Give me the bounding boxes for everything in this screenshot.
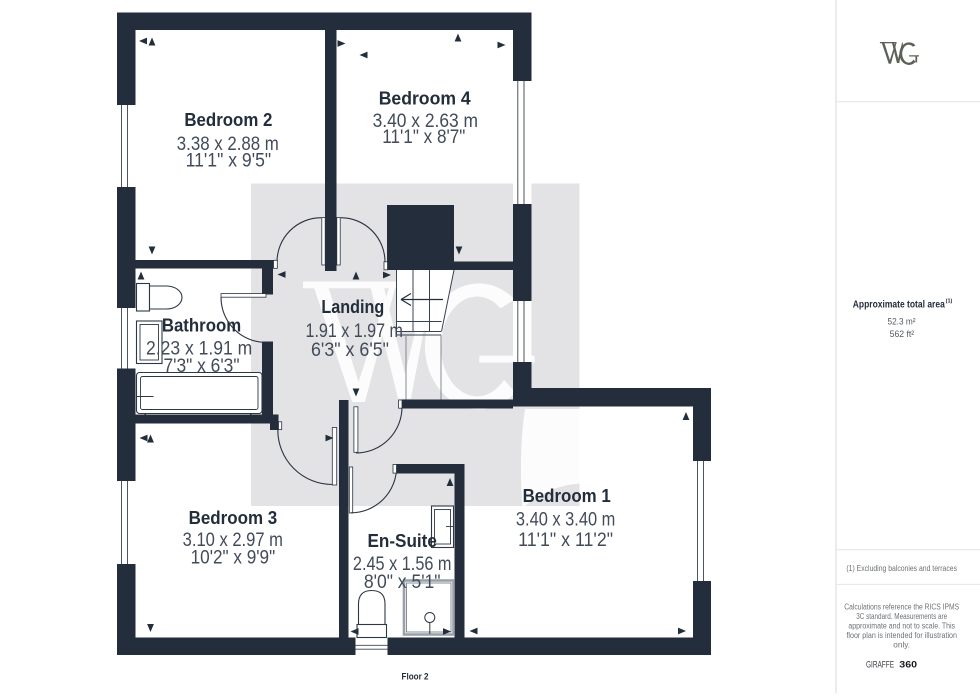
svg-text:562 ft²: 562 ft²: [890, 329, 915, 340]
svg-text:Floor 2: Floor 2: [402, 672, 429, 683]
svg-text:11'1" x 9'5": 11'1" x 9'5": [186, 150, 272, 171]
svg-text:En-Suite: En-Suite: [368, 531, 437, 551]
svg-text:11'1" x 11'2": 11'1" x 11'2": [518, 530, 613, 551]
svg-text:Bedroom 3: Bedroom 3: [189, 508, 278, 528]
svg-text:3C standard. Measurements are: 3C standard. Measurements are: [856, 612, 947, 621]
svg-text:7'3" x 6'3": 7'3" x 6'3": [163, 356, 239, 377]
svg-text:Bedroom 4: Bedroom 4: [379, 88, 471, 108]
svg-text:1.91 x 1.97 m: 1.91 x 1.97 m: [306, 321, 403, 342]
svg-text:Approximate total area: Approximate total area: [853, 300, 945, 311]
svg-text:Landing: Landing: [321, 297, 384, 317]
svg-text:8'0" x 5'1": 8'0" x 5'1": [364, 572, 441, 593]
svg-text:Bathroom: Bathroom: [162, 315, 241, 335]
svg-text:6'3" x 6'5": 6'3" x 6'5": [311, 340, 389, 361]
svg-text:Calculations reference the RIC: Calculations reference the RICS IPMS: [844, 603, 959, 612]
svg-text:52.3 m²: 52.3 m²: [888, 317, 916, 328]
svg-text:Bedroom 2: Bedroom 2: [184, 110, 272, 130]
svg-text:only.: only.: [893, 641, 910, 650]
svg-text:360: 360: [899, 659, 917, 670]
svg-text:Bedroom 1: Bedroom 1: [523, 486, 611, 506]
svg-text:approximate and not to scale.: approximate and not to scale. This: [848, 622, 955, 631]
svg-text:11'1" x 8'7": 11'1" x 8'7": [382, 127, 465, 148]
svg-text:GIRAFFE: GIRAFFE: [866, 659, 894, 670]
svg-text:floor plan is intended for ill: floor plan is intended for illustration: [846, 631, 957, 640]
svg-text:10'2" x 9'9": 10'2" x 9'9": [191, 548, 276, 569]
svg-text:3.40 x 3.40 m: 3.40 x 3.40 m: [516, 510, 615, 531]
svg-text:(1): (1): [946, 299, 953, 305]
svg-text:(1) Excluding balconies and te: (1) Excluding balconies and terraces: [846, 564, 957, 573]
